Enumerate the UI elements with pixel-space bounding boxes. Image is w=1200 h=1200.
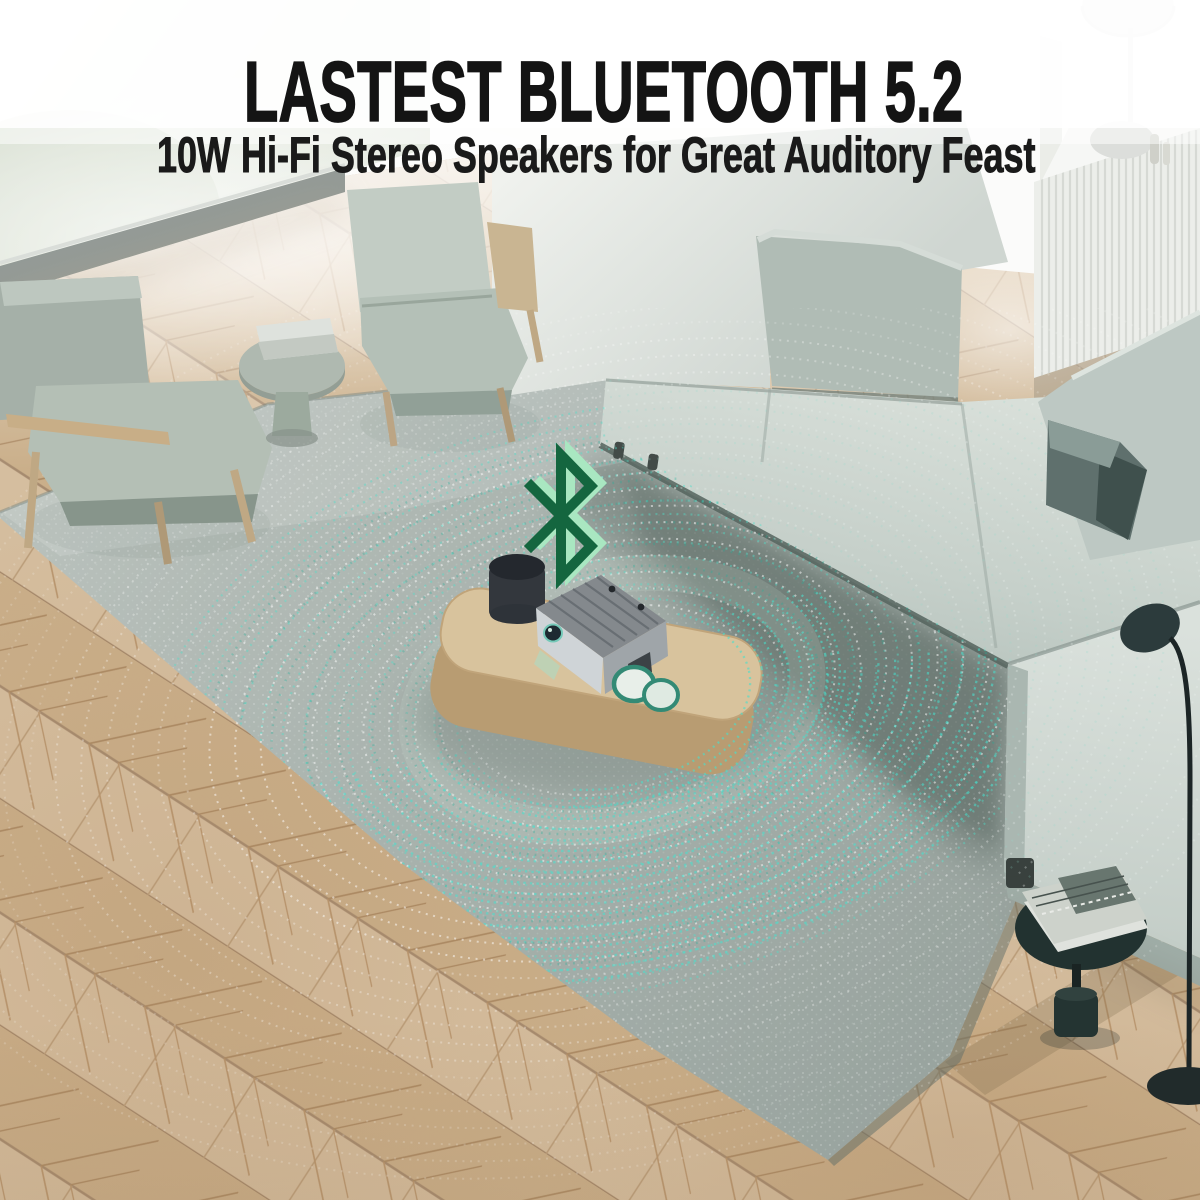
svg-text:LASTEST BLUETOOTH 5.2: LASTEST BLUETOOTH 5.2 bbox=[244, 45, 964, 139]
svg-text:10W Hi-Fi Stereo Speakers for: 10W Hi-Fi Stereo Speakers for Great Audi… bbox=[157, 128, 1036, 183]
